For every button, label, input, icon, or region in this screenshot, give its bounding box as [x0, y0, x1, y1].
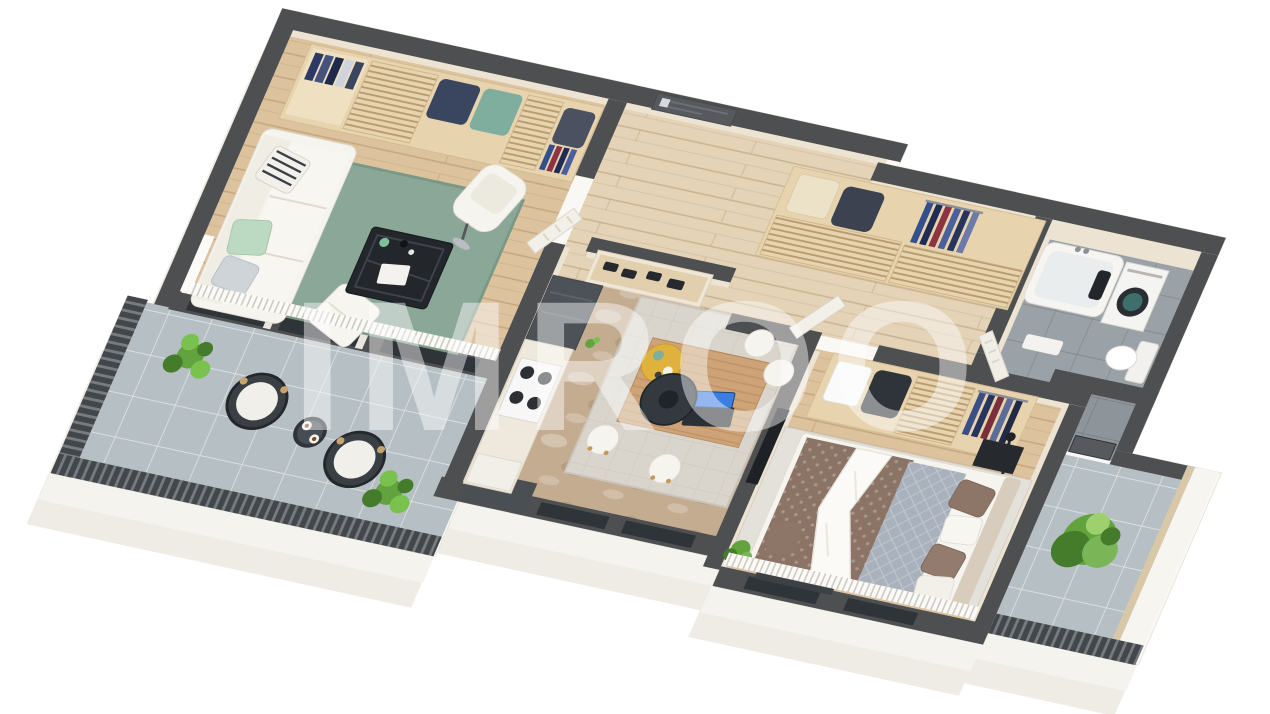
- floor-plan-canvas: IMROO: [0, 0, 1270, 714]
- pillow-white: [939, 515, 984, 546]
- pillow-mint: [226, 219, 273, 255]
- watermark-text: IMROO: [292, 264, 989, 470]
- pillow-foot: [765, 522, 803, 553]
- floor-plan-render: IMROO: [0, 0, 1270, 714]
